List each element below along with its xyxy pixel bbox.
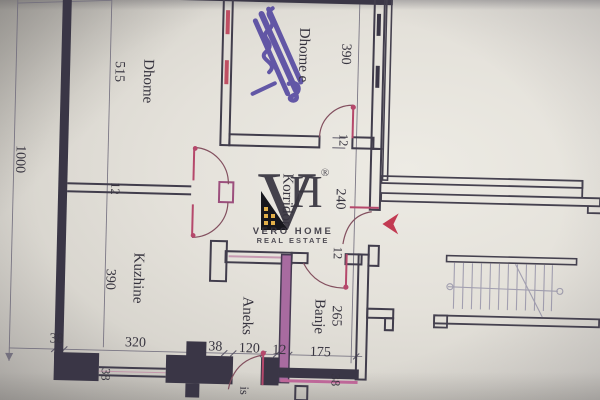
wall-banje-bottom — [279, 368, 359, 380]
label-partial-text: is — [237, 386, 251, 395]
dim-overall-height: 1000 — [12, 145, 28, 173]
floor-plan-photo: 1000 515 Dhome Dhome e 390 12 240 12 Kor… — [0, 0, 600, 400]
dim-wall12-bath: 12 — [331, 247, 345, 260]
room-label-dhome-left: Dhome — [139, 59, 156, 104]
watermark-letter-h: H — [289, 166, 322, 217]
dim-room-top: 390 — [338, 43, 354, 64]
wall-stairwell-bottom — [434, 315, 599, 327]
room-label-aneks: Aneks — [239, 296, 256, 335]
dim-wall12-top: 12 — [336, 134, 350, 147]
dim-bottom-38b: 38 — [208, 339, 222, 354]
room-label-banje: Banje — [311, 299, 328, 335]
dim-kitchen: 390 — [102, 269, 118, 290]
dim-bottom-320: 320 — [125, 335, 146, 351]
ink-scribble — [252, 8, 302, 101]
wall-left-exterior — [54, 0, 72, 360]
wall-corridor-top — [229, 134, 319, 147]
dim-wall12-inner: 12 — [108, 182, 122, 195]
dim-banje: 265 — [328, 305, 344, 326]
dim-bottom-120: 120 — [239, 341, 260, 357]
staircase — [445, 256, 576, 318]
dim-bottom-175: 175 — [310, 345, 331, 361]
dim-38-rot-right: 38 — [328, 374, 342, 387]
dim-room-left: 515 — [111, 61, 127, 82]
watermark: V H ® VERO HOME REAL ESTATE — [253, 155, 334, 246]
dim-bottom-12: 12 — [272, 343, 286, 358]
floor-plan-svg: 1000 515 Dhome Dhome e 390 12 240 12 Kor… — [0, 0, 600, 400]
entrance-arrow — [382, 213, 399, 234]
door-post — [219, 182, 233, 202]
dim-bottom-38a: 38 — [49, 331, 63, 346]
watermark-registered-icon: ® — [321, 167, 329, 179]
room-label-kuzhine: Kuzhine — [129, 252, 146, 304]
dim-corridor: 240 — [332, 188, 348, 209]
dim-38-rot-left: 38 — [99, 368, 113, 381]
wall-right-corridor-top — [381, 176, 582, 188]
wall-banje-left — [279, 255, 292, 383]
wall-top-exterior — [63, 0, 393, 5]
room-label-dhome-top: Dhome e — [295, 28, 312, 83]
watermark-line2: REAL ESTATE — [257, 236, 330, 245]
